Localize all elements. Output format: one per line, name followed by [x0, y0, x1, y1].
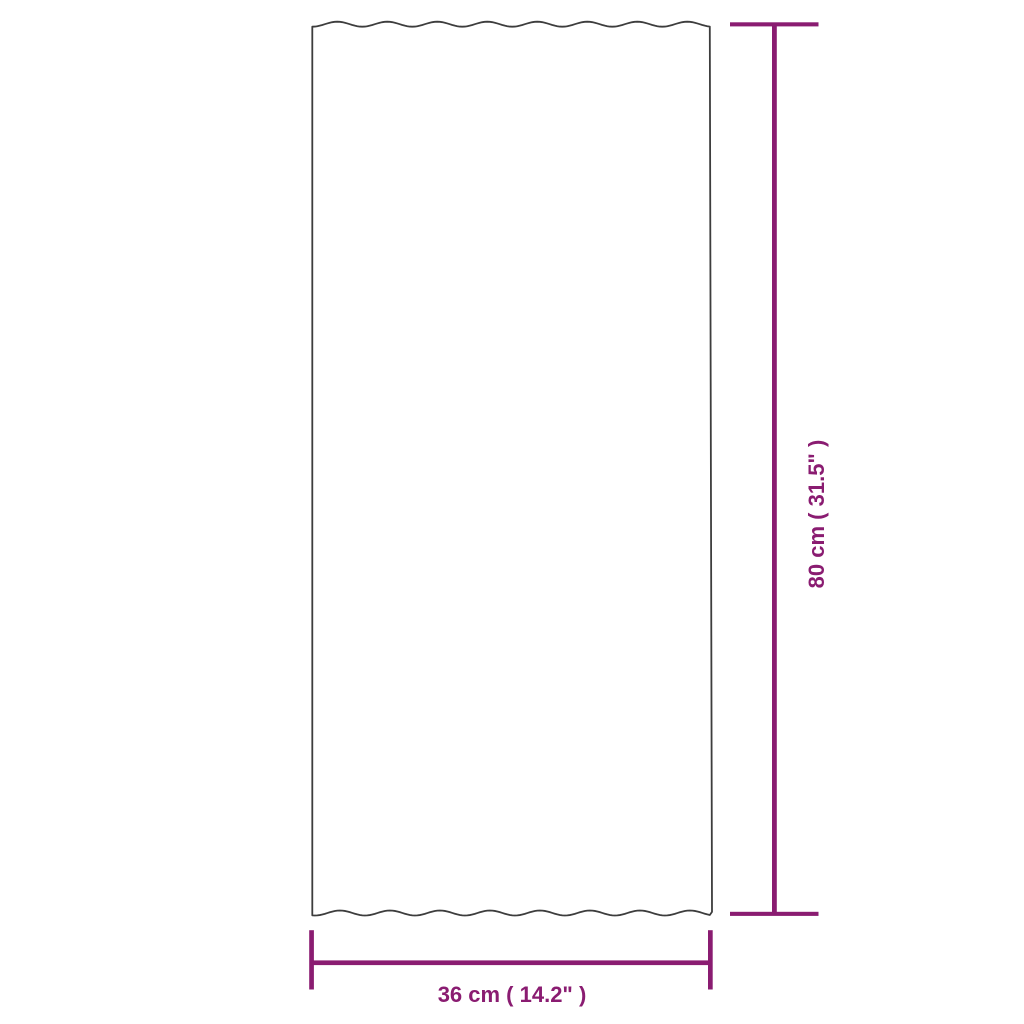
svg-text:36 cm ( 14.2" ): 36 cm ( 14.2" ): [438, 982, 587, 1007]
svg-text:80 cm ( 31.5" ): 80 cm ( 31.5" ): [804, 440, 829, 589]
